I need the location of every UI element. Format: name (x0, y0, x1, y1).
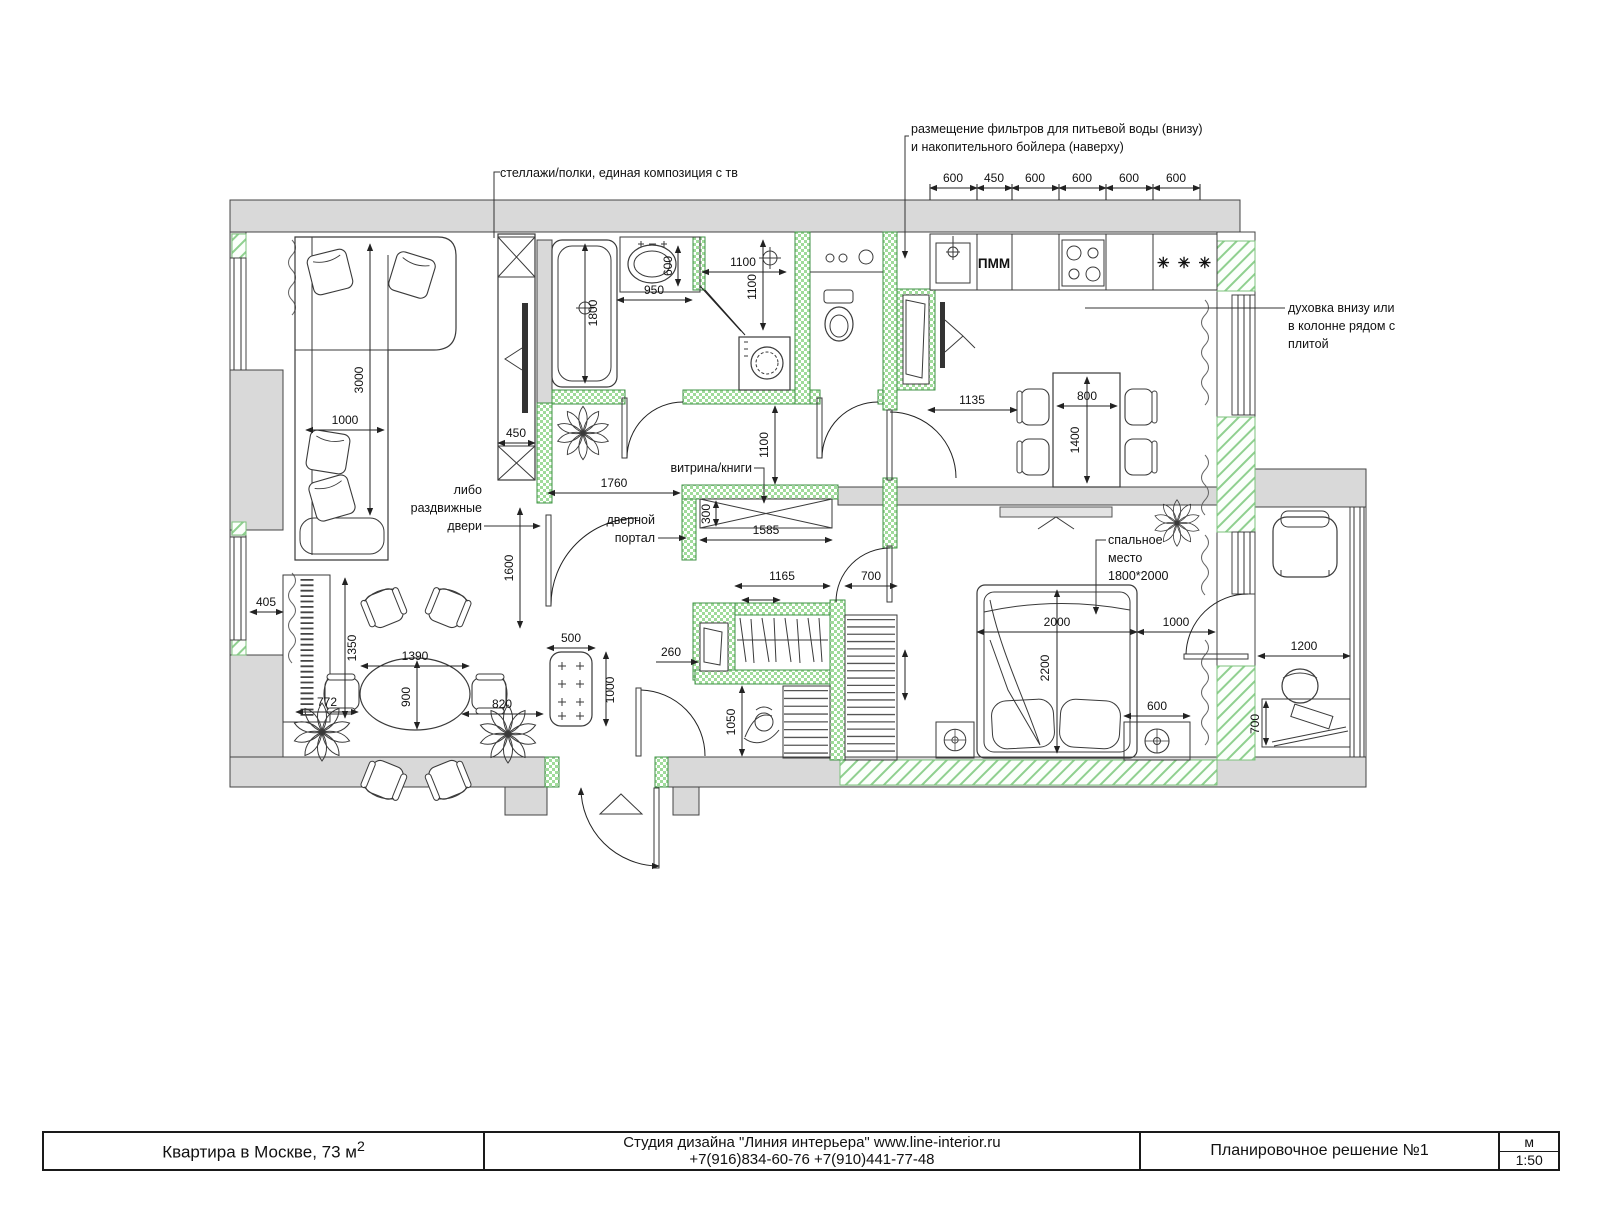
balcony-desk (1262, 669, 1350, 747)
dim-text: 1760 (601, 476, 628, 490)
dim-text: 600 (1119, 171, 1139, 185)
dim-text: 500 (561, 631, 581, 645)
window-living (230, 258, 246, 370)
kitchen-counter: ПММ ✳ ✳ ✳ (930, 234, 1217, 290)
note-sliding-1: либо (454, 483, 482, 497)
title-block: Квартира в Москве, 73 м2 Студия дизайна … (42, 1131, 1560, 1171)
dim-text: 1165 (769, 569, 795, 583)
dim-text: 2200 (1038, 654, 1052, 681)
note-sleep-1: спальное (1108, 533, 1163, 547)
dim-text: 700 (1248, 714, 1262, 734)
nightstand-right (1124, 722, 1190, 760)
dim-text: 450 (984, 171, 1004, 185)
dim-text: 1100 (745, 274, 759, 300)
dim-text: 300 (699, 504, 713, 524)
dim-text: 1000 (1163, 615, 1190, 629)
door-living (546, 515, 638, 606)
tv-console-kitchen (897, 289, 975, 390)
note-portal-1: дверной (606, 513, 655, 527)
bedroom-console (1000, 507, 1112, 529)
units-label: м (1500, 1133, 1558, 1152)
dim-text: 900 (399, 687, 413, 707)
dim-text: 3000 (352, 366, 366, 393)
dim-text: 1000 (332, 413, 359, 427)
dishwasher-label: ПММ (978, 256, 1010, 271)
window-dining (230, 537, 246, 640)
note-vitrine: витрина/книги (670, 461, 752, 475)
dim-text: 600 (1147, 699, 1167, 713)
dim-text: 1585 (753, 523, 780, 537)
dim-text: 1800 (586, 299, 600, 326)
note-sleep-3: 1800*2000 (1108, 569, 1169, 583)
title-studio: Студия дизайна "Линия интерьера" www.lin… (485, 1133, 1141, 1169)
fridge-symbol: ✳ ✳ ✳ (1157, 255, 1213, 272)
note-filters-2: и накопительного бойлера (наверху) (911, 140, 1124, 154)
note-oven-1: духовка внизу или (1288, 301, 1395, 315)
window-kitchen (1232, 295, 1255, 415)
tv-panel (522, 303, 528, 413)
dim-text: 1400 (1068, 426, 1082, 453)
plant-hall (556, 406, 609, 459)
dim-text: 1000 (603, 676, 617, 703)
dim-text: 600 (1072, 171, 1092, 185)
note-filters-1: размещение фильтров для питьевой воды (в… (911, 122, 1203, 136)
dim-text: 820 (492, 697, 512, 711)
dim-text: 405 (256, 595, 276, 609)
title-sheet-name: Планировочное решение №1 (1141, 1133, 1501, 1169)
bench-pouf (550, 652, 592, 726)
studio-phones: +7(916)834-60-76 +7(910)441-77-48 (689, 1151, 934, 1168)
person-figure (744, 707, 779, 743)
door-bathroom (622, 398, 683, 458)
nightstand-left (936, 722, 974, 758)
door-wc (817, 398, 878, 458)
balcony-armchair (1273, 511, 1337, 577)
note-oven-3: плитой (1288, 337, 1329, 351)
scale-value: 1:50 (1500, 1152, 1558, 1170)
dim-text: 1100 (730, 255, 756, 269)
note-sleep-2: место (1108, 551, 1142, 565)
dim-text: 772 (317, 695, 337, 709)
note-oven-2: в колонне рядом с (1288, 319, 1395, 333)
toilet (810, 250, 883, 341)
dim-text: 1050 (724, 708, 738, 735)
window-bedroom (1232, 532, 1255, 594)
entrance-triangle (600, 794, 642, 814)
project-name: Квартира в Москве, 73 м (162, 1143, 357, 1162)
dim-text: 260 (661, 645, 681, 659)
dim-text: 600 (1166, 171, 1186, 185)
note-shelves: стеллажи/полки, единая композиция с тв (500, 166, 738, 180)
title-scale-cell: м 1:50 (1500, 1133, 1560, 1169)
dim-text: 600 (661, 256, 675, 276)
window-balcony (1350, 507, 1366, 757)
floor-plan-sheet: ПММ ✳ ✳ ✳ (0, 0, 1600, 1210)
dim-text: 1390 (402, 649, 429, 663)
dim-text: 700 (861, 569, 881, 583)
title-project: Квартира в Москве, 73 м2 (42, 1133, 485, 1169)
washing-machine (739, 337, 790, 390)
dim-text: 600 (943, 171, 963, 185)
shower-zone (759, 247, 781, 269)
dim-text: 1135 (959, 393, 985, 407)
floor-plan-drawing: ПММ ✳ ✳ ✳ (0, 0, 1600, 1210)
dim-text: 1600 (502, 554, 516, 581)
dim-text: 600 (1025, 171, 1045, 185)
note-portal-2: портал (615, 531, 655, 545)
dim-kitchen-top: 600 450 600 600 600 600 (930, 171, 1200, 200)
dim-text: 1350 (345, 634, 359, 661)
studio-name: Студия дизайна "Линия интерьера" www.lin… (623, 1134, 1000, 1151)
dim-text: 950 (644, 283, 664, 297)
dim-text: 1100 (757, 432, 771, 458)
project-sup: 2 (357, 1139, 365, 1155)
door-entrance (581, 788, 659, 868)
note-sliding-3: двери (447, 519, 482, 533)
dim-text: 1200 (1291, 639, 1318, 653)
dim-text: 450 (506, 426, 526, 440)
door-closet (636, 688, 705, 756)
door-kitchen (887, 410, 956, 480)
note-sliding-2: раздвижные (411, 501, 482, 515)
